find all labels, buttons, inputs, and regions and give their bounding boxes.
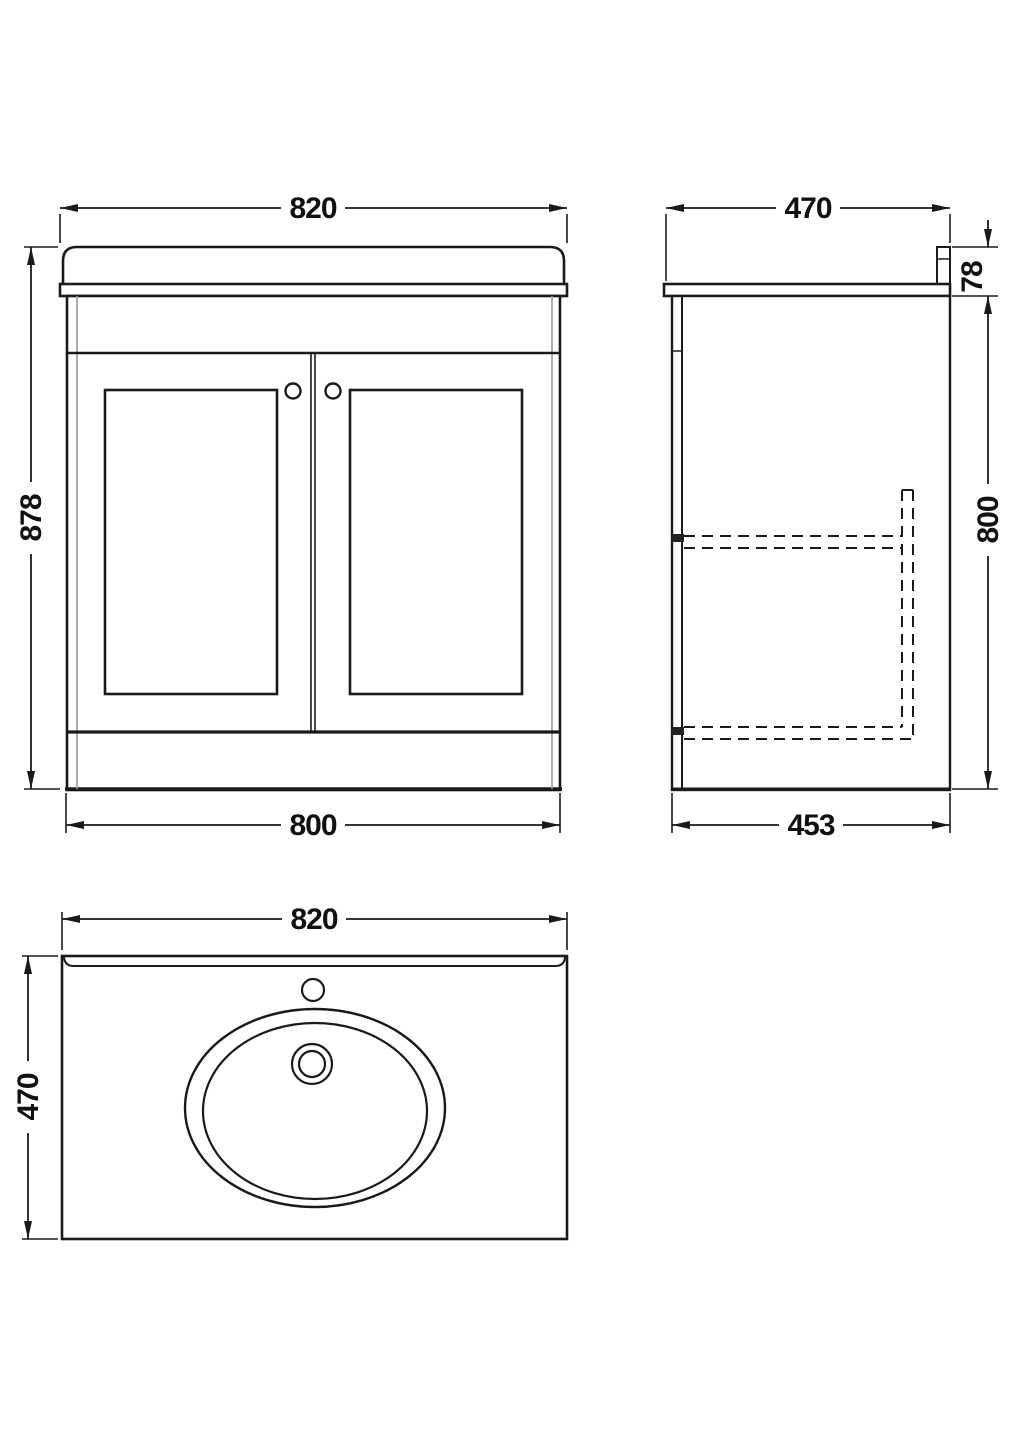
dimension-front-bottom-width: 800: [66, 793, 560, 842]
cabinet-body-front: [67, 296, 560, 790]
right-door-knob: [326, 384, 341, 399]
dimension-side-bottom-depth: 453: [672, 793, 950, 842]
worktop-upstand-side: [937, 247, 950, 284]
dimension-label: 878: [15, 494, 48, 541]
dimension-side-worktop-height: 78: [952, 220, 998, 296]
dimension-label: 470: [784, 192, 831, 225]
side-elevation-view: 470 78: [664, 192, 1005, 842]
dimension-label: 453: [787, 809, 834, 842]
dimension-label: 820: [290, 903, 337, 936]
dimension-side-depth: 470: [666, 192, 950, 281]
front-elevation-view: 820 878: [15, 192, 567, 842]
dimension-label: 800: [972, 496, 1005, 543]
dimension-front-top-width: 820: [60, 192, 567, 243]
dimension-label: 820: [289, 192, 336, 225]
dimension-front-height: 878: [15, 247, 60, 789]
vanity-unit-dimension-drawing: 820 878: [0, 0, 1024, 1449]
plan-view: 820 470: [12, 903, 567, 1239]
dimension-label: 800: [289, 809, 336, 842]
dimension-side-cabinet-height: 800: [952, 296, 1005, 789]
worktop-band-side: [664, 284, 950, 296]
worktop-plan-outline: [62, 956, 567, 1239]
cabinet-body-side: [672, 296, 950, 790]
dimension-label: 78: [956, 261, 989, 293]
worktop-band-front: [60, 284, 567, 296]
left-door-knob: [286, 384, 301, 399]
dimension-label: 470: [12, 1073, 45, 1120]
technical-drawing-page: 820 878: [0, 0, 1024, 1449]
dimension-plan-depth: 470: [12, 956, 58, 1239]
dimension-plan-width: 820: [62, 903, 567, 950]
shelf-fixing-mark: [671, 534, 684, 542]
shelf-fixing-mark: [671, 727, 684, 735]
basin-top-front: [63, 247, 564, 285]
